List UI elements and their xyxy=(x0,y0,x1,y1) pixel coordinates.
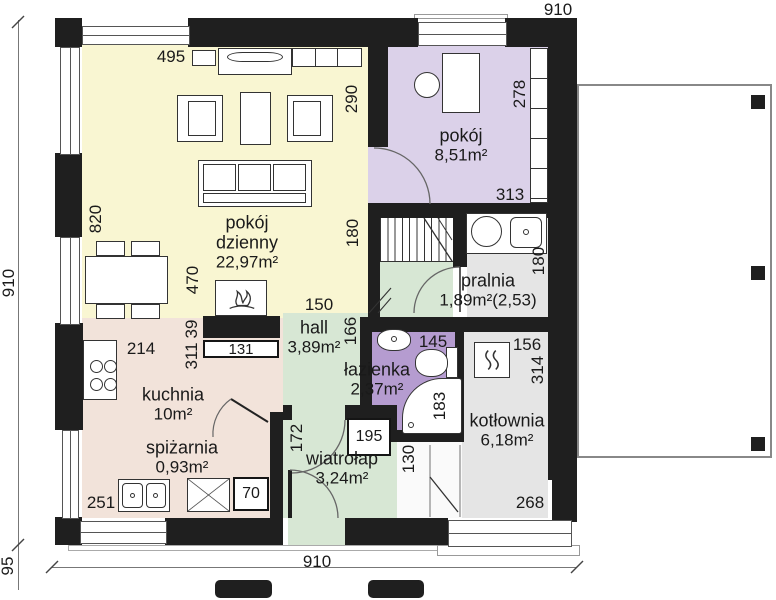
dim-251: 251 xyxy=(87,493,115,513)
window xyxy=(82,26,190,45)
dim-910-top: 910 xyxy=(544,0,572,20)
sofa-front xyxy=(203,193,306,203)
terrace-post xyxy=(751,266,765,280)
sink-drain xyxy=(130,493,135,498)
fireplace xyxy=(215,280,267,316)
room-area: 10m² xyxy=(142,405,204,424)
desk-chair xyxy=(414,72,440,98)
dim-131: 131 xyxy=(228,341,253,358)
stove-burner xyxy=(104,360,117,373)
room-area: 3,89m² xyxy=(288,338,341,357)
dim-311: 311 xyxy=(182,342,202,369)
wall xyxy=(283,405,292,420)
dining-chair xyxy=(96,241,125,256)
wall xyxy=(270,412,283,518)
armchair-seat xyxy=(293,101,321,136)
window xyxy=(418,22,507,46)
dim-39: 39 xyxy=(182,320,202,339)
window xyxy=(80,521,167,544)
dim-95-left: 95 xyxy=(0,557,18,576)
wall xyxy=(55,153,82,237)
dim-box-131: 131 xyxy=(203,340,279,358)
stove-burner xyxy=(90,378,103,391)
dim-145: 145 xyxy=(419,332,447,352)
heat-icon xyxy=(475,343,509,377)
dim-470: 470 xyxy=(183,266,203,294)
dim-290: 290 xyxy=(342,85,362,113)
sink-drain xyxy=(391,336,397,342)
wall xyxy=(368,203,380,332)
sofa-cushion xyxy=(273,164,306,191)
washing-machine xyxy=(471,216,502,247)
room-name: pokój xyxy=(435,125,488,145)
wall xyxy=(165,518,283,545)
stairs xyxy=(380,218,453,262)
dim-195: 195 xyxy=(356,428,383,446)
dim-313: 313 xyxy=(496,185,524,205)
dim-172: 172 xyxy=(287,424,307,452)
room-area: 2,37m² xyxy=(344,380,410,399)
entry-door-leaf xyxy=(288,470,292,518)
desk xyxy=(442,53,480,113)
room-name: kuchnia xyxy=(142,384,204,404)
room-name: spiżarnia xyxy=(146,437,218,457)
dim-150: 150 xyxy=(305,295,333,315)
wall xyxy=(368,18,388,147)
room-label-bedroom: pokój 8,51m² xyxy=(435,125,488,164)
room-vestibule-doorway xyxy=(288,518,345,545)
room-area: 22,97m² xyxy=(202,253,292,272)
room-label-bathroom: łazienka 2,37m² xyxy=(344,359,410,398)
wall xyxy=(345,518,448,545)
dim-70: 70 xyxy=(242,485,260,503)
armchair-seat xyxy=(188,101,216,136)
room-label-hall: hall 3,89m² xyxy=(288,317,341,356)
dim-166: 166 xyxy=(341,317,361,345)
boiler-exit-door xyxy=(448,520,572,547)
dim-183: 183 xyxy=(430,392,450,420)
toilet-bowl xyxy=(415,349,448,377)
room-area: 3,24m² xyxy=(306,469,378,488)
water-heater xyxy=(474,342,510,378)
room-label-boiler: kotłownia 6,18m² xyxy=(469,410,544,449)
dim-910-bottom: 910 xyxy=(303,552,331,572)
room-name: hall xyxy=(288,317,341,337)
window xyxy=(60,237,80,325)
wall xyxy=(55,323,83,430)
dining-chair xyxy=(131,241,160,256)
dimension-line-left xyxy=(18,20,19,590)
dim-495: 495 xyxy=(157,47,185,67)
sofa-cushion xyxy=(238,164,271,191)
room-label-pantry: spiżarnia 0,93m² xyxy=(146,437,218,476)
sofa-cushion xyxy=(203,164,236,191)
window xyxy=(62,430,79,519)
chimney-block xyxy=(203,316,280,338)
room-label-vestibule: wiatrołap 3,24m² xyxy=(306,448,378,487)
wall xyxy=(548,18,577,480)
stove-burner xyxy=(90,360,103,373)
sink-drain xyxy=(523,229,529,235)
side-table xyxy=(192,50,216,66)
site-block xyxy=(368,580,424,598)
room-label-kitchen: kuchnia 10m² xyxy=(142,384,204,423)
dining-chair xyxy=(96,304,125,319)
dim-314: 314 xyxy=(528,356,548,384)
room-name: pokój dzienny xyxy=(202,212,292,252)
dim-278: 278 xyxy=(510,80,530,108)
wall xyxy=(390,405,397,442)
stove-burner xyxy=(104,378,117,391)
shower-drain xyxy=(408,422,414,428)
tv xyxy=(227,52,283,62)
dim-156: 156 xyxy=(513,335,541,355)
dim-180-stairs: 180 xyxy=(343,219,363,247)
dim-214: 214 xyxy=(127,339,155,359)
flame-icon xyxy=(216,281,266,315)
room-name: pralnia xyxy=(439,270,536,290)
terrace-post xyxy=(751,437,765,451)
sink-drain xyxy=(153,493,158,498)
dim-820: 820 xyxy=(86,205,106,233)
fridge-cabinet xyxy=(187,478,230,512)
dining-table xyxy=(85,256,168,304)
room-name: kotłownia xyxy=(469,410,544,430)
dim-910-left: 910 xyxy=(0,269,19,297)
room-area: 8,51m² xyxy=(435,146,488,165)
wall xyxy=(552,480,577,522)
room-area: 1,89m²(2,53) xyxy=(439,291,536,310)
room-label-living: pokój dzienny 22,97m² xyxy=(202,212,292,271)
window xyxy=(60,47,80,155)
room-name: wiatrołap xyxy=(306,448,378,468)
dim-268: 268 xyxy=(516,493,544,513)
wall xyxy=(453,218,467,267)
dim-130: 130 xyxy=(399,445,419,473)
wardrobe xyxy=(530,48,548,203)
room-area: 6,18m² xyxy=(469,431,544,450)
cabinet-row xyxy=(292,48,362,67)
room-name: łazienka xyxy=(344,359,410,379)
terrace-post xyxy=(751,95,765,109)
room-label-laundry: pralnia 1,89m²(2,53) xyxy=(439,270,536,309)
coffee-table xyxy=(240,92,271,145)
wall xyxy=(55,18,82,47)
terrace xyxy=(577,84,772,458)
wall xyxy=(55,517,82,545)
site-block xyxy=(215,580,272,598)
window-sill xyxy=(414,14,508,19)
room-area: 0,93m² xyxy=(146,458,218,477)
dim-box-70: 70 xyxy=(233,477,269,511)
floor-plan: 131 70 195 910 910 95 910 495 290 820 27… xyxy=(0,0,776,600)
dining-chair xyxy=(131,304,160,319)
